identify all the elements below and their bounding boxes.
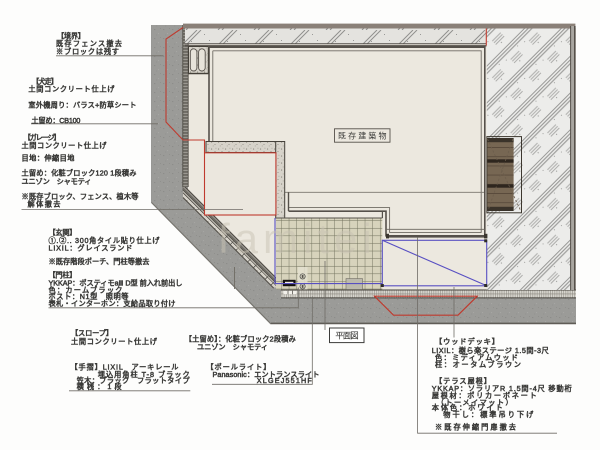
svg-text:XLGEJ551HF: XLGEJ551HF [257, 376, 313, 385]
svg-text:【ウッドデッキ】: 【ウッドデッキ】 [435, 337, 499, 346]
svg-text:famitei: famitei [218, 215, 377, 262]
svg-text:土留め：CB100: 土留め：CB100 [31, 116, 80, 125]
svg-text:解体撤去: 解体撤去 [28, 200, 61, 209]
svg-text:※既存伸縮門扉撤去: ※既存伸縮門扉撤去 [435, 422, 516, 431]
svg-text:物干し：標準吊り下げ: 物干し：標準吊り下げ [443, 410, 534, 419]
svg-text:目地：伸縮目地: 目地：伸縮目地 [22, 153, 75, 162]
svg-text:既存建築物: 既存建築物 [338, 131, 387, 141]
svg-text:土間コンクリート仕上げ: 土間コンクリート仕上げ [28, 85, 115, 94]
svg-text:平面図: 平面図 [335, 331, 359, 341]
svg-text:土間コンクリート仕上げ: 土間コンクリート仕上げ [22, 141, 108, 150]
svg-text:ユニゾン シャモティ: ユニゾン シャモティ [22, 177, 92, 186]
svg-text:ユニゾン シャモティ: ユニゾン シャモティ [197, 342, 268, 351]
svg-text:横桟：1段: 横桟：1段 [77, 382, 122, 391]
svg-text:※既存階段ポーチ、門柱等撤去: ※既存階段ポーチ、門柱等撤去 [49, 257, 150, 266]
svg-text:LIXIL：グレイスランド: LIXIL：グレイスランド [49, 244, 133, 253]
svg-text:室外機周り：バラス+防草シート: 室外機周り：バラス+防草シート [28, 101, 136, 110]
svg-text:表札・インターホン：支給品取り付け: 表札・インターホン：支給品取り付け [49, 299, 176, 308]
svg-text:※ブロックは残す: ※ブロックは残す [56, 47, 119, 56]
svg-text:土間コンクリート仕上げ: 土間コンクリート仕上げ [71, 337, 158, 346]
